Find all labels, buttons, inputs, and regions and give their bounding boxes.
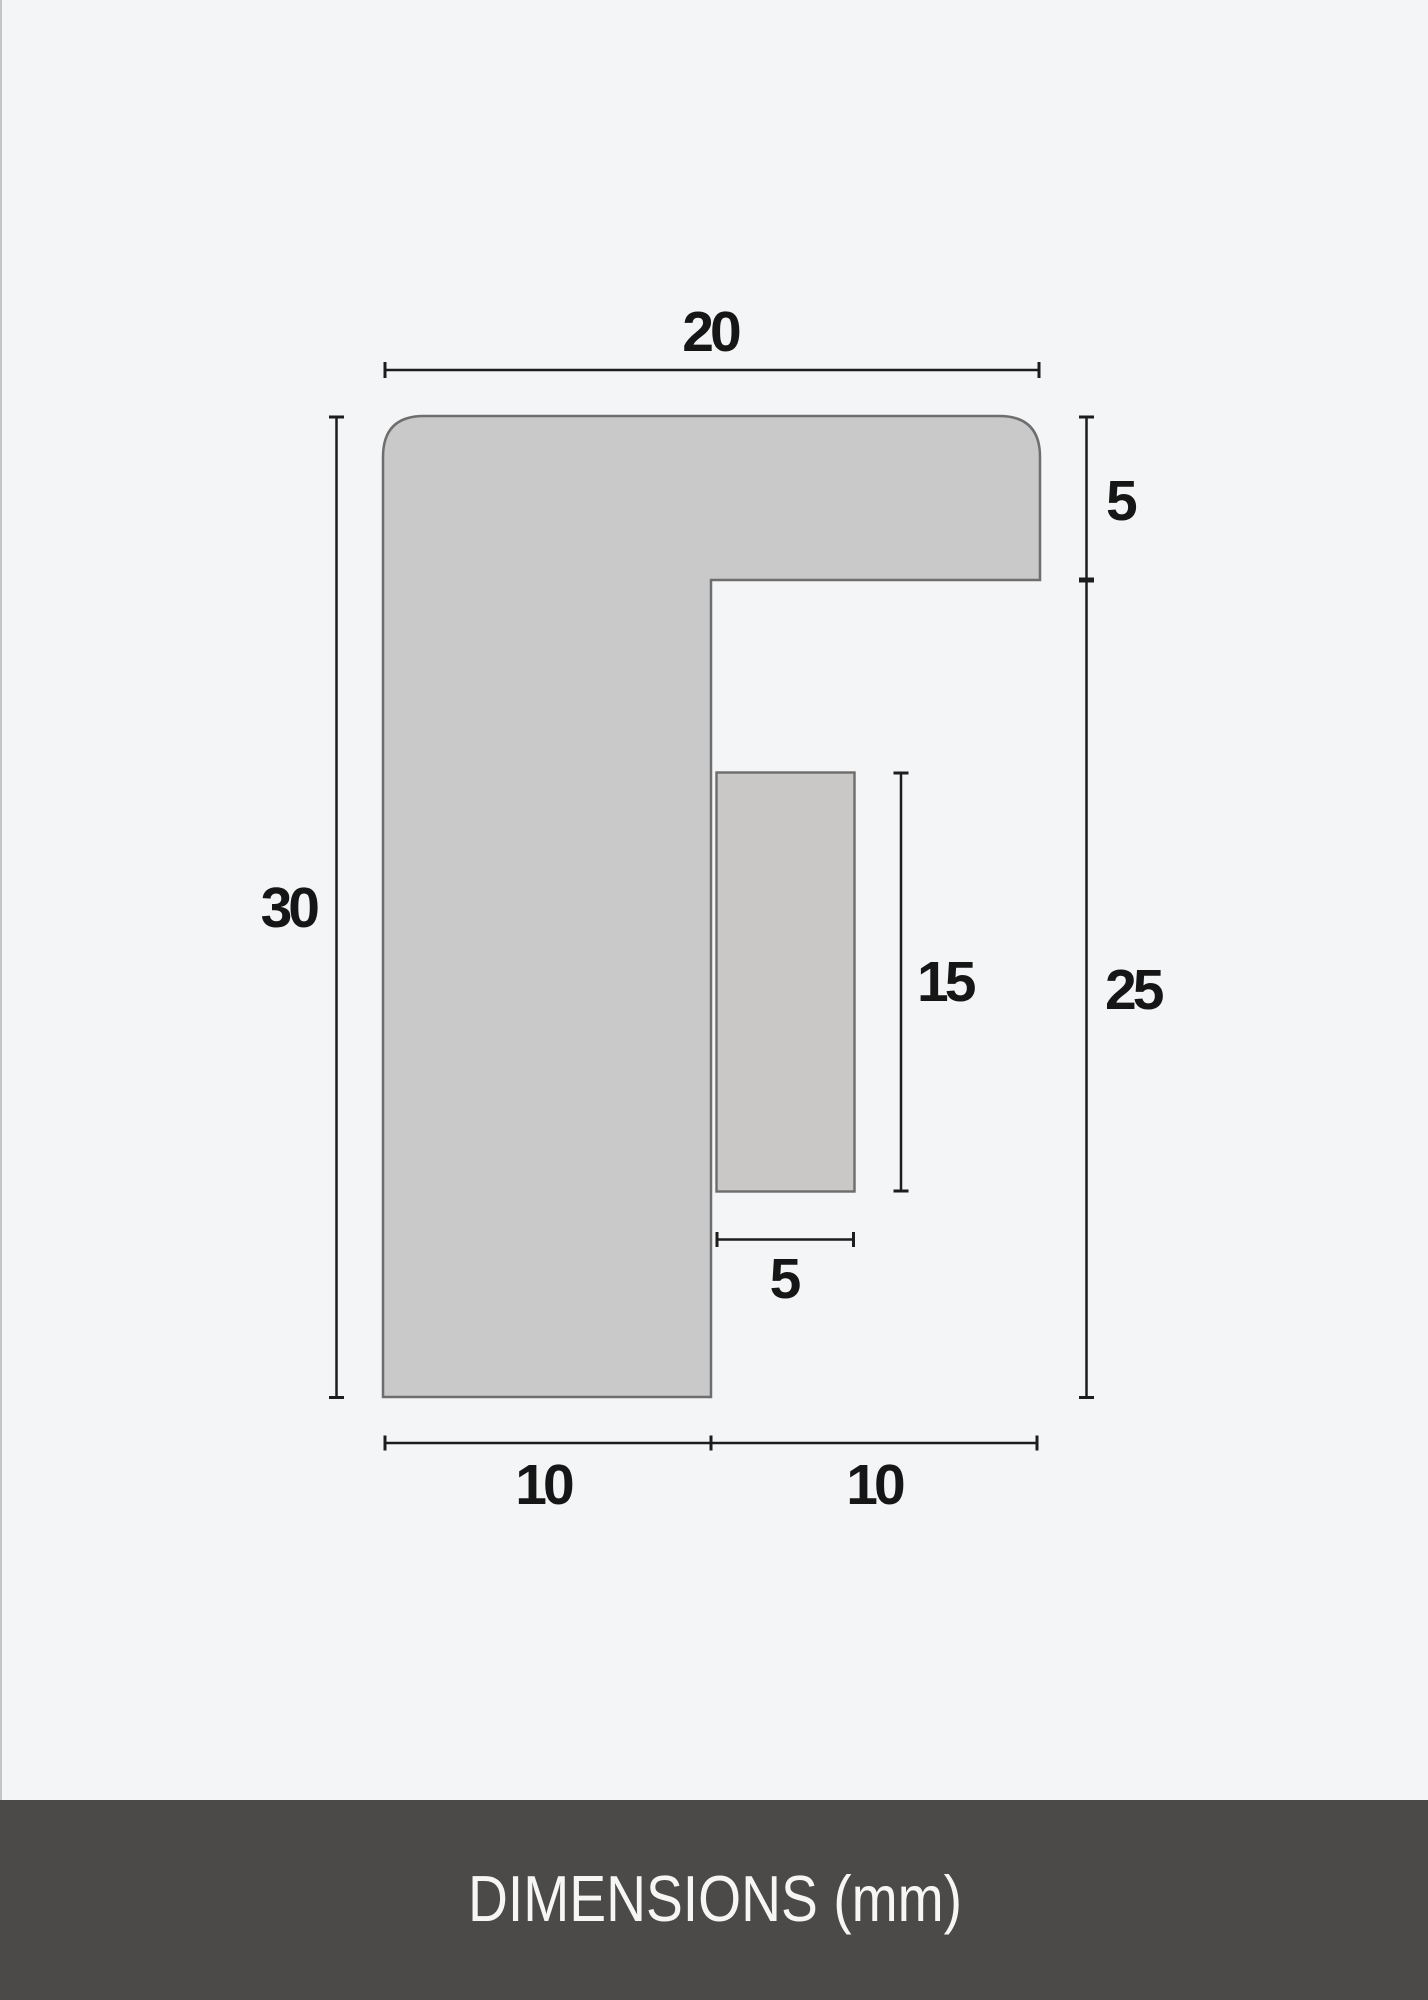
svg-text:10: 10 [515,1453,573,1517]
svg-text:10: 10 [846,1453,904,1517]
svg-text:20: 20 [682,300,740,364]
svg-text:5: 5 [770,1247,801,1311]
svg-text:15: 15 [917,950,976,1014]
svg-text:25: 25 [1105,958,1164,1022]
svg-text:30: 30 [261,876,319,940]
svg-text:5: 5 [1106,469,1137,533]
svg-text:DIMENSIONS (mm): DIMENSIONS (mm) [468,1862,962,1935]
